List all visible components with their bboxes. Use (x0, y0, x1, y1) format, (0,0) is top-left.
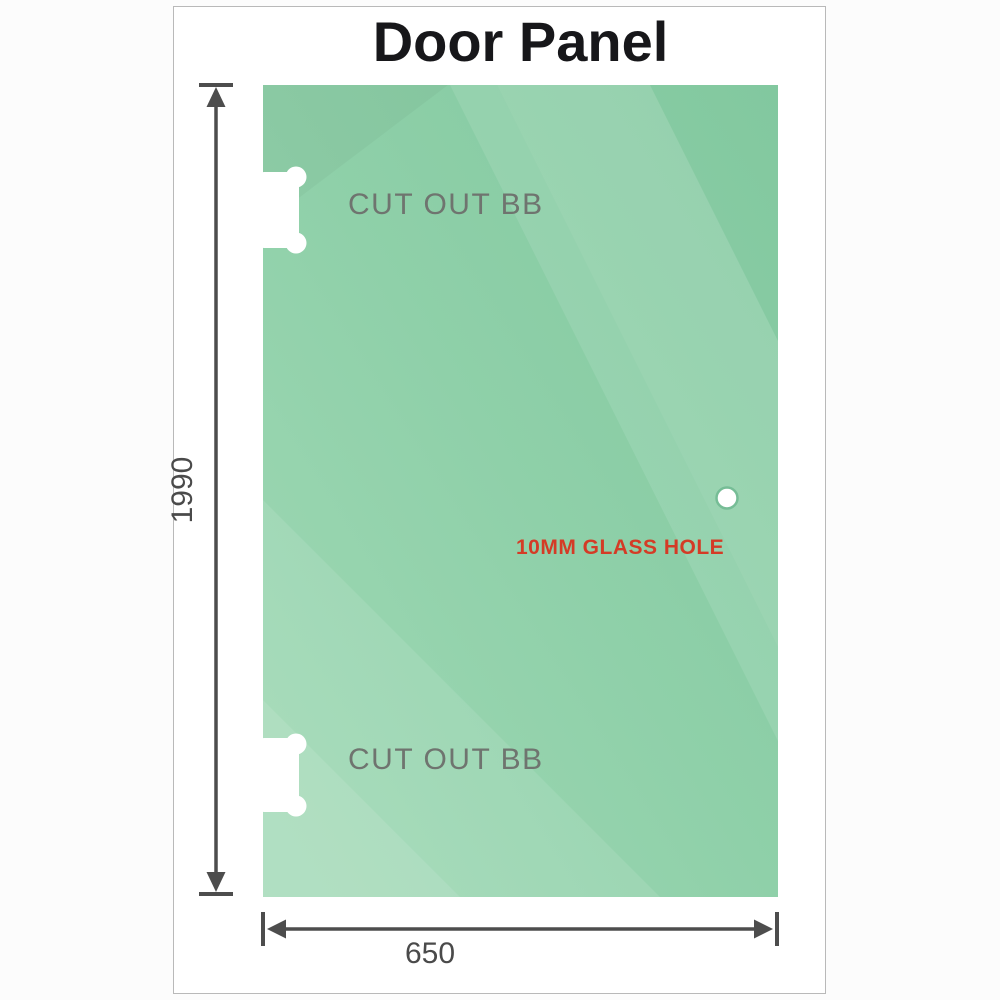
page-background: { "window": { "title": "Door Panel" }, "… (0, 0, 1000, 1000)
arrow-down-icon (207, 872, 226, 892)
glass-hole-label: 10MM GLASS HOLE (516, 537, 724, 558)
glass-hole (717, 488, 738, 509)
arrow-right-icon (754, 920, 773, 939)
arrow-up-icon (207, 87, 226, 107)
height-dimension (199, 85, 233, 894)
arrow-left-icon (267, 920, 286, 939)
door-panel-diagram (0, 0, 1000, 1000)
cutout-bottom-label: CUT OUT BB (348, 745, 544, 775)
page-title: Door Panel (263, 14, 778, 70)
width-dimension (263, 912, 777, 946)
cutout-top-label: CUT OUT BB (348, 190, 544, 220)
width-dimension-value: 650 (405, 939, 455, 969)
height-dimension-value: 1990 (168, 457, 198, 524)
